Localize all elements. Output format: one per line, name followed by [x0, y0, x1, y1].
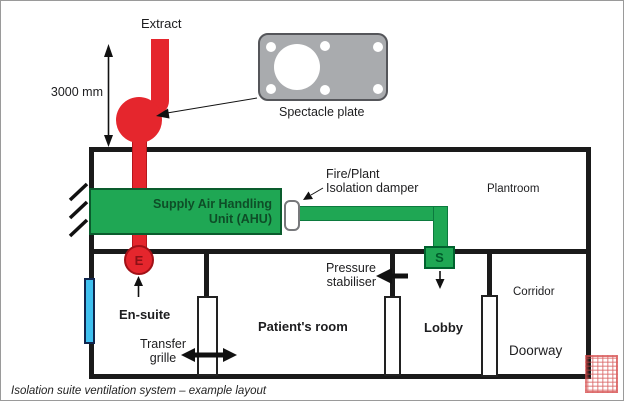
fire-damper-label-line1: Fire/Plant	[326, 167, 380, 181]
dimension-arrow-3000mm	[104, 44, 113, 147]
plantroom-top-wall	[89, 147, 591, 152]
fire-isolation-damper	[284, 200, 300, 231]
watermark-stamp	[585, 355, 618, 393]
doorway-label: Doorway	[509, 343, 562, 358]
bolt-hole	[266, 42, 276, 52]
bolt-hole	[320, 41, 330, 51]
ensuite-label: En-suite	[119, 307, 170, 322]
ceiling-wall	[89, 249, 591, 254]
pressure-label-line2: stabiliser	[327, 275, 376, 289]
supply-terminal-letter: S	[435, 250, 444, 265]
spectacle-plate-label: Spectacle plate	[279, 105, 364, 119]
extract-airflow-arrow	[134, 276, 143, 297]
left-wall	[89, 147, 94, 379]
patients-room-label: Patient's room	[258, 319, 348, 334]
corridor-partition-wall	[487, 254, 492, 295]
dimension-label: 3000 mm	[41, 85, 103, 99]
corridor-label: Corridor	[513, 286, 555, 298]
spectacle-plate	[258, 33, 388, 101]
corridor-door	[481, 295, 498, 377]
ensuite-partition-wall	[204, 254, 209, 297]
supply-duct-horizontal	[298, 206, 448, 221]
supply-ahu-box: Supply Air Handling Unit (AHU)	[89, 188, 282, 235]
extract-fan	[116, 97, 162, 143]
extract-terminal-letter: E	[135, 253, 144, 268]
fire-damper-label-line2: Isolation damper	[326, 181, 418, 195]
extract-label: Extract	[141, 16, 181, 31]
floor-wall	[89, 374, 591, 379]
ahu-label-line2: Unit (AHU)	[91, 212, 272, 227]
ahu-label-line1: Supply Air Handling	[91, 197, 272, 212]
transfer-label-line1: Transfer	[140, 337, 186, 351]
bolt-hole	[266, 84, 276, 94]
supply-airflow-arrow	[436, 271, 445, 289]
bolt-hole	[373, 84, 383, 94]
fire-damper-label: Fire/PlantIsolation damper	[326, 167, 418, 195]
lobby-partition-wall	[390, 254, 395, 297]
supply-duct-drop	[433, 206, 448, 249]
extract-terminal-badge: E	[124, 245, 154, 275]
figure-caption: Isolation suite ventilation system – exa…	[11, 385, 266, 397]
lobby-door	[384, 296, 401, 376]
right-wall	[586, 147, 591, 379]
bolt-hole	[320, 85, 330, 95]
ensuite-window	[84, 278, 95, 344]
pressure-stabiliser-label: Pressurestabiliser	[316, 261, 376, 289]
supply-terminal-badge: S	[424, 246, 455, 269]
isolation-suite-ventilation-diagram: E Supply Air Handling Unit (AHU) S	[0, 0, 624, 401]
transfer-label-line2: grille	[150, 351, 176, 365]
pressure-label-line1: Pressure	[326, 261, 376, 275]
wall-break-hatch	[70, 184, 87, 236]
transfer-grille-door	[197, 296, 218, 376]
lobby-label: Lobby	[424, 320, 463, 335]
transfer-grille-label: Transfergrille	[133, 337, 193, 365]
spectacle-plate-hole	[274, 44, 320, 90]
plantroom-label: Plantroom	[487, 183, 539, 195]
bolt-hole	[373, 42, 383, 52]
spectacle-plate-pointer	[156, 98, 257, 119]
damper-pointer	[303, 188, 323, 200]
